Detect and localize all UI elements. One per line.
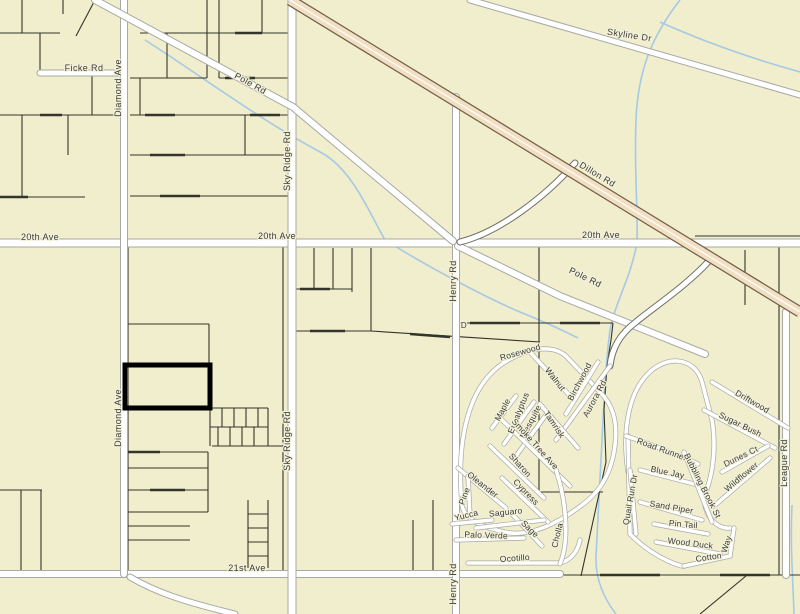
street-label-ocotillo: Ocotillo — [500, 552, 531, 564]
street-label-d: D — [461, 321, 467, 330]
street-label-20th-ave: 20th Ave — [258, 231, 296, 241]
street-label-20th-ave: 20th Ave — [21, 232, 59, 242]
street-label-21st-ave: 21st Ave — [228, 563, 266, 573]
gis-parcel-map-viewport[interactable]: Ficke RdDiamond AveDiamond AvePole RdSky… — [0, 0, 800, 614]
street-label-diamond-ave: Diamond Ave — [113, 59, 123, 117]
street-label-henry-rd: Henry Rd — [448, 260, 458, 301]
parcel-map[interactable]: Ficke RdDiamond AveDiamond AvePole RdSky… — [0, 0, 800, 614]
street-label-ficke-rd: Ficke Rd — [65, 63, 104, 73]
street-label-diamond-ave: Diamond Ave — [113, 389, 123, 447]
street-label-league-rd: League Rd — [779, 439, 789, 487]
street-label-palo-verde: Palo Verde — [464, 529, 508, 541]
street-label-henry-rd: Henry Rd — [448, 563, 458, 604]
street-label-sky-ridge-rd: Sky Ridge Rd — [282, 411, 292, 471]
street-label-20th-ave: 20th Ave — [582, 230, 620, 240]
street-label-sky-ridge-rd: Sky Ridge Rd — [282, 131, 292, 191]
